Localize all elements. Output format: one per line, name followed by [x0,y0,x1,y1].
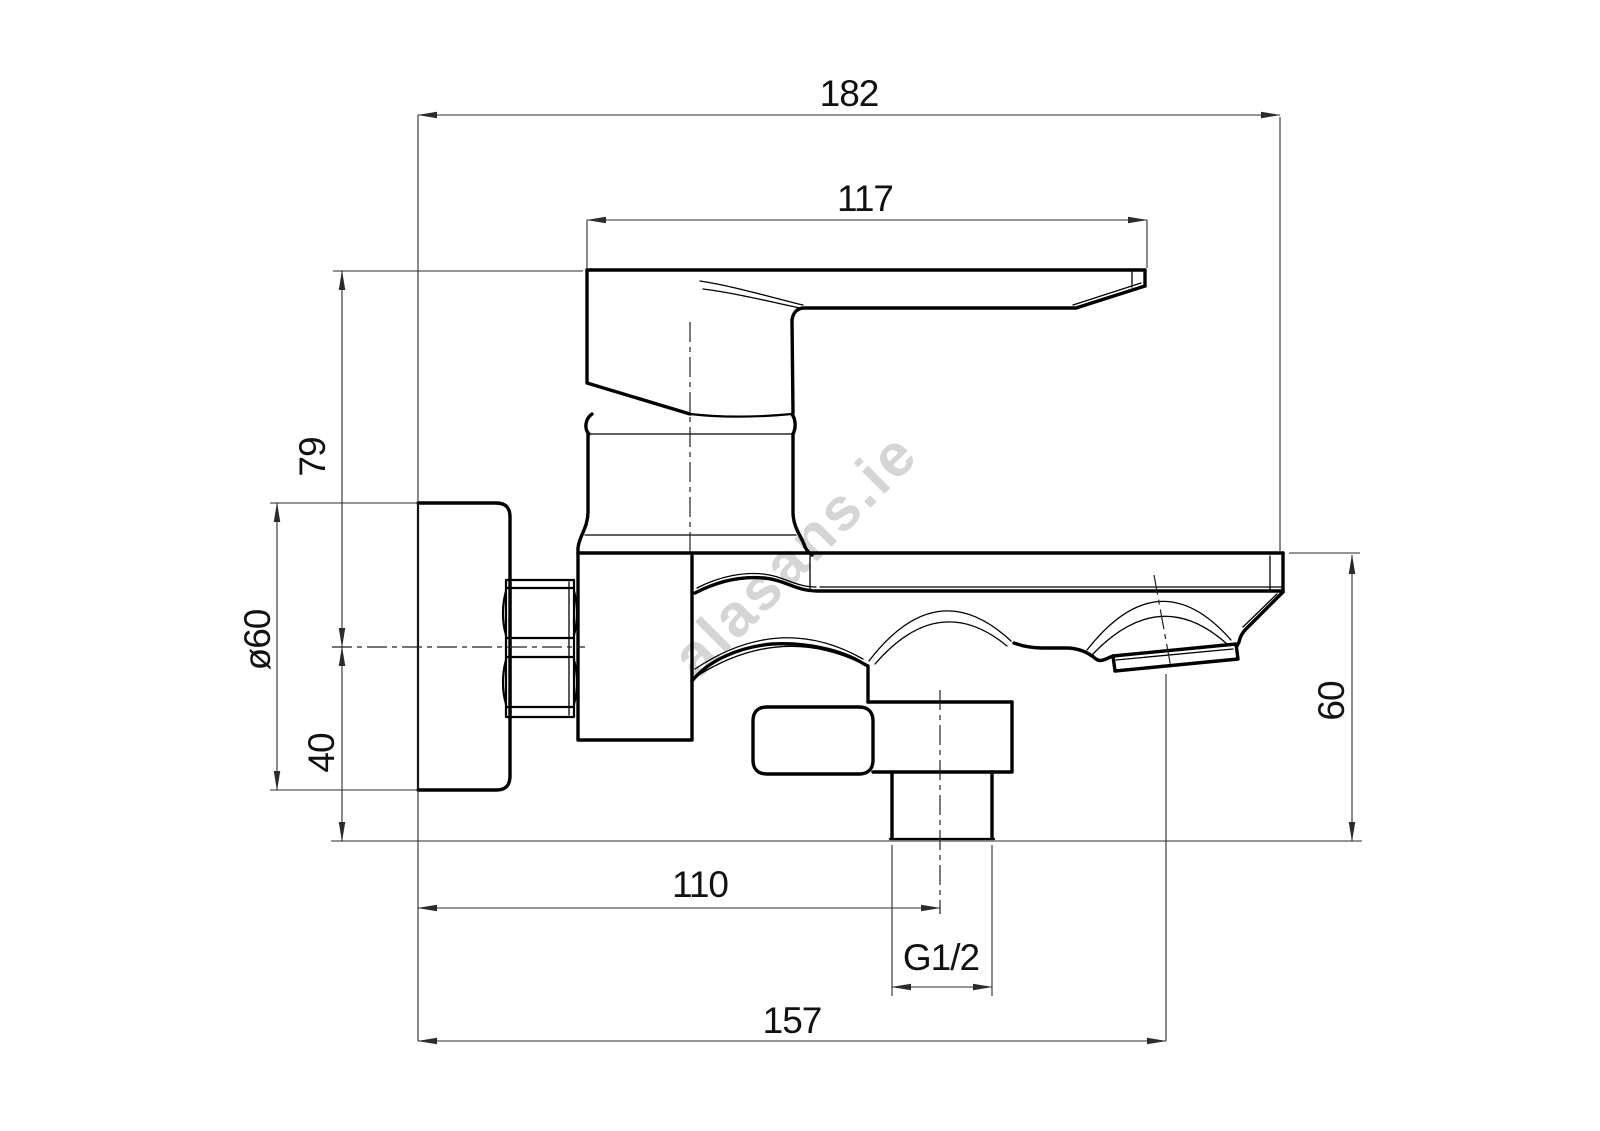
spout-tip [1237,592,1283,646]
dim-182-label: 182 [820,73,879,114]
diverter-knob [753,707,873,774]
aerator [1113,644,1238,671]
dim-g12-label: G1/2 [903,937,979,978]
mixer-tap-dimension-drawing: alasans.ie [0,0,1600,1131]
dim-117-label: 117 [837,178,893,219]
lever-handle [587,270,1145,417]
arch-valley [1014,643,1113,661]
blade-edge-highlight [1073,283,1141,305]
dim-157-label: 157 [763,1000,822,1041]
dim-60-label: 60 [1311,681,1352,721]
neck-contour-a [700,281,803,305]
dim-40-label: 40 [301,733,342,773]
mixer-body-outline [418,270,1283,839]
diverter-assembly [753,702,1012,839]
dim-dia60-label: ø60 [237,609,278,670]
arch-2 [869,611,1011,661]
hex-nut [503,580,577,717]
dim-79-label: 79 [292,437,333,476]
aerator-centerline [1154,575,1171,668]
arch-3 [1087,601,1231,650]
dim-110-label: 110 [672,864,728,905]
technical-drawing-page: alasans.ie [0,0,1600,1131]
